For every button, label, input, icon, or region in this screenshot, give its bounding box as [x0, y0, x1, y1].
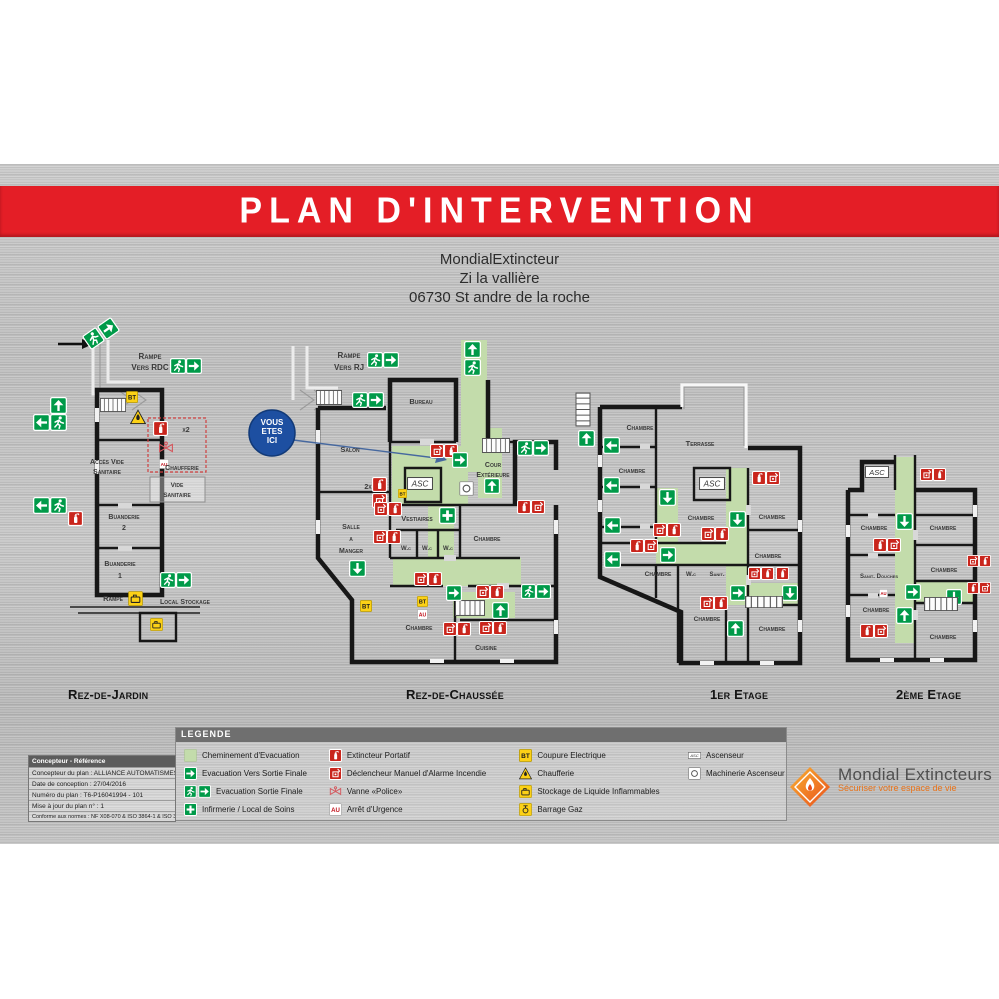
ext-icon	[933, 468, 945, 480]
arrow-icon	[184, 767, 197, 780]
arrow-icon	[369, 393, 384, 408]
room-label: Chambre	[474, 536, 502, 543]
room-label: Chambre	[931, 567, 958, 574]
ext-icon	[388, 531, 401, 544]
room-label: Chambre	[688, 515, 715, 522]
arrow-icon	[604, 478, 620, 494]
room-label: Cour	[485, 462, 502, 469]
runner-icon	[51, 415, 67, 431]
arrow-icon	[537, 585, 551, 599]
alarm-icon	[767, 472, 780, 485]
bt-icon	[126, 391, 137, 402]
au-icon	[329, 803, 342, 816]
designer-row: Mise à jour du plan n° : 1	[29, 800, 175, 811]
ext-icon	[716, 528, 729, 541]
legend-label: Cheminement d'Evacuation	[202, 751, 300, 760]
floor-rez-de-jardin: RampeVers RDCx2Accès VideSanitaireChauff…	[34, 318, 211, 641]
room-label: Chambre	[759, 626, 786, 633]
legend-column: AscenseurMachinerie Ascenseur	[688, 746, 784, 818]
arrow-icon	[605, 518, 621, 534]
stairs-icon	[316, 391, 341, 405]
runner-icon	[161, 573, 176, 588]
runner-icon	[465, 360, 481, 376]
room-label: Chambre	[627, 425, 655, 432]
room-label: Sanitaire	[163, 492, 191, 499]
room-label: a	[349, 536, 353, 543]
designer-row: Conforme aux normes : NF X08-070 & ISO 3…	[29, 811, 175, 821]
asc-icon	[688, 749, 701, 762]
arrow-icon	[534, 441, 549, 456]
legend-item: Cheminement d'Evacuation	[184, 746, 329, 764]
arrow-icon	[661, 548, 676, 563]
logo-flame-icon	[788, 765, 832, 809]
stairs-icon	[100, 398, 125, 411]
legend-column: Cheminement d'EvacuationEvacuation Vers …	[184, 746, 329, 818]
ext-icon	[458, 623, 471, 636]
room-label: W.c	[401, 546, 411, 552]
exitfinal-icon	[184, 785, 211, 798]
alarm-icon	[888, 539, 901, 552]
alarm-icon	[645, 540, 658, 553]
ext-icon	[761, 567, 773, 579]
legend-label: Vanne «Police»	[347, 787, 402, 796]
ext-icon	[154, 422, 168, 436]
alarm-icon	[875, 625, 888, 638]
ext-icon	[69, 512, 83, 526]
legend-item: Vanne «Police»	[329, 782, 519, 800]
legend-item: Stockage de Liquide Inflammables	[519, 782, 688, 800]
legend-item: Arrêt d'Urgence	[329, 800, 519, 818]
you-are-here-text: VOUS	[261, 418, 284, 427]
bt-icon	[519, 749, 532, 762]
room-label: Salon	[340, 445, 360, 454]
ext-icon	[668, 524, 681, 537]
bt-icon	[360, 600, 371, 611]
alarm-icon	[920, 468, 932, 480]
warn-icon	[131, 410, 146, 423]
runner-icon	[522, 585, 536, 599]
mach-icon	[460, 482, 474, 496]
room-label: x2	[182, 427, 189, 434]
room-label: Vers RDC	[131, 363, 168, 372]
stairs-icon	[576, 393, 590, 426]
alarm-icon	[480, 622, 493, 635]
legend-label: Evacuation Sortie Finale	[216, 787, 303, 796]
room-label: Chambre	[863, 607, 890, 614]
bt-icon	[417, 596, 427, 606]
gas-icon	[519, 803, 532, 816]
legend-item: Evacuation Vers Sortie Finale	[184, 764, 329, 782]
arrow-icon	[660, 490, 676, 506]
room-label: 2	[122, 525, 126, 532]
room-label: Sanit.	[709, 572, 724, 578]
legend-label: Extincteur Portatif	[347, 751, 410, 760]
alarm-icon	[444, 623, 457, 636]
designer-box-header: Concepteur - Référence	[29, 756, 175, 767]
mach-icon	[688, 767, 701, 780]
room-label: Chambre	[930, 525, 957, 532]
alarm-icon	[374, 531, 387, 544]
room-label: Chambre	[406, 625, 434, 632]
arrow-icon	[34, 498, 50, 514]
floor-label-rez-de-chaussee: Rez-de-Chaussée	[406, 687, 504, 702]
store-icon	[150, 618, 162, 630]
room-label: Cuisine	[475, 645, 497, 652]
legend-label: Chaufferie	[537, 769, 574, 778]
legend-item: Machinerie Ascenseur	[688, 764, 784, 782]
room-label: Terrasse	[686, 439, 715, 448]
legend-item: Chaufferie	[519, 764, 688, 782]
stairs-icon	[746, 596, 783, 607]
stairs-icon	[456, 601, 485, 616]
arrow-icon	[177, 573, 192, 588]
store-icon	[129, 592, 143, 606]
alarm-icon	[532, 501, 545, 514]
room-label: Local Stockage	[160, 599, 211, 606]
room-label: Chambre	[694, 616, 721, 623]
ext-icon	[429, 573, 442, 586]
ext-icon	[373, 478, 387, 492]
arrow-icon	[897, 608, 913, 624]
room-label: Rampe	[337, 351, 360, 360]
you-are-here-text: ETES	[262, 427, 284, 436]
arrow-icon	[485, 479, 500, 494]
you-are-here-badge: VOUSETESICI	[249, 410, 295, 456]
warn-icon	[519, 767, 532, 780]
floor-plans-canvas: BT AU	[0, 0, 999, 999]
ext-icon	[518, 501, 531, 514]
legend-item: Barrage Gaz	[519, 800, 688, 818]
ext-icon	[715, 597, 728, 610]
runner-icon	[171, 359, 186, 374]
ext-icon	[967, 582, 978, 593]
room-label: Vestiaires	[401, 514, 433, 523]
room-label: Chambre	[861, 525, 888, 532]
legend-item: Evacuation Sortie Finale	[184, 782, 329, 800]
alarm-icon	[701, 597, 714, 610]
arrow-icon	[51, 398, 67, 414]
room-label: Chambre	[645, 571, 672, 578]
room-label: W.c	[686, 572, 696, 578]
arrow-icon	[897, 514, 913, 530]
logo-name: Mondial Extincteurs	[838, 765, 992, 785]
floor-label-deuxieme-etage: 2ème Etage	[896, 687, 961, 702]
runner-icon	[368, 353, 383, 368]
asc-icon	[408, 478, 433, 490]
legend-title: LEGENDE	[176, 728, 786, 742]
legend-panel: LEGENDE Cheminement d'EvacuationEvacuati…	[175, 727, 787, 821]
legend-item: Extincteur Portatif	[329, 746, 519, 764]
alarm-icon	[375, 503, 388, 516]
alarm-icon	[748, 567, 760, 579]
arrow-icon	[906, 585, 921, 600]
ext-icon	[491, 586, 504, 599]
ext-icon	[776, 567, 788, 579]
room-label: 2x	[364, 484, 372, 491]
alarm-icon	[477, 586, 490, 599]
alarm-icon	[979, 582, 990, 593]
path-icon	[184, 749, 197, 762]
arrow-icon	[783, 586, 798, 601]
room-label: Buanderie	[108, 514, 140, 521]
alarm-icon	[431, 445, 444, 458]
you-are-here-text: ICI	[267, 436, 277, 445]
arrow-icon	[605, 552, 621, 568]
room-label: Manger	[339, 548, 363, 555]
legend-label: Machinerie Ascenseur	[706, 769, 785, 778]
arrow-icon	[604, 438, 620, 454]
alarm-icon	[329, 767, 342, 780]
room-label: Chambre	[755, 553, 782, 560]
room-label: Salle	[342, 524, 360, 531]
room-label: Chambre	[619, 468, 646, 475]
arrow-icon	[384, 353, 399, 368]
runner-icon	[353, 393, 368, 408]
logo-tagline: Sécuriser votre espace de vie	[838, 783, 992, 793]
arrow-icon	[731, 586, 746, 601]
ext-icon	[329, 749, 342, 762]
stairs-icon	[482, 439, 509, 453]
room-label: Sanit. Douches	[860, 574, 898, 580]
ext-icon	[979, 555, 990, 566]
ext-icon	[874, 539, 887, 552]
designer-box: Concepteur - Référence Concepteur du pla…	[28, 755, 176, 822]
room-label: Bureau	[409, 397, 433, 406]
arrow-icon	[579, 431, 595, 447]
legend-label: Infirmerie / Local de Soins	[202, 805, 295, 814]
room-label: Sanitaire	[93, 469, 122, 476]
arrow-icon	[465, 342, 481, 358]
arrow-icon	[447, 586, 462, 601]
room-label: Rampe	[138, 352, 161, 361]
arrow-icon	[34, 415, 50, 431]
cross-icon	[184, 803, 197, 816]
room-label: Vide	[171, 482, 184, 489]
arrow-icon	[728, 621, 744, 637]
arrow-icon	[187, 359, 202, 374]
vanne-icon	[329, 785, 342, 798]
bt-icon	[398, 489, 406, 497]
alarm-icon	[967, 555, 978, 566]
room-label: 1	[118, 573, 122, 580]
ext-icon	[753, 472, 766, 485]
room-label: Vers RJ	[334, 363, 364, 372]
stairs-icon	[925, 597, 958, 610]
asc-icon	[700, 478, 725, 490]
arrow-icon	[453, 453, 468, 468]
legend-label: Coupure Electrique	[537, 751, 605, 760]
au-icon	[418, 610, 428, 620]
designer-row: Numéro du plan : T6-P16041994 - 101	[29, 789, 175, 800]
arrow-icon	[350, 561, 366, 577]
legend-column: Coupure ElectriqueChaufferieStockage de …	[519, 746, 688, 818]
floor-rez-de-chaussee: RampeVers RJBureauSalon2xCourExtérieureV…	[293, 340, 558, 663]
alarm-icon	[654, 524, 667, 537]
arrow-icon	[493, 603, 509, 619]
legend-label: Arrêt d'Urgence	[347, 805, 403, 814]
ext-icon	[389, 503, 402, 516]
store-icon	[519, 785, 532, 798]
legend-item: Déclencheur Manuel d'Alarme Incendie	[329, 764, 519, 782]
legend-label: Stockage de Liquide Inflammables	[537, 787, 659, 796]
runner-icon	[51, 498, 67, 514]
ext-icon	[494, 622, 507, 635]
alarm-icon	[415, 573, 428, 586]
runner-icon	[518, 441, 533, 456]
logo: Mondial Extincteurs Sécuriser votre espa…	[788, 765, 992, 809]
cross-icon	[440, 508, 456, 524]
legend-column: Extincteur PortatifDéclencheur Manuel d'…	[329, 746, 519, 818]
asc-icon	[866, 467, 889, 478]
alarm-icon	[702, 528, 715, 541]
legend-item: Infirmerie / Local de Soins	[184, 800, 329, 818]
room-label: W.c	[422, 546, 432, 552]
designer-row: Date de conception : 27/04/2016	[29, 778, 175, 789]
legend-item: Coupure Electrique	[519, 746, 688, 764]
legend-label: Evacuation Vers Sortie Finale	[202, 769, 307, 778]
room-label: W.c	[443, 546, 453, 552]
legend-item: Ascenseur	[688, 746, 784, 764]
ext-icon	[861, 625, 874, 638]
designer-row: Concepteur du plan : ALLIANCE AUTOMATISM…	[29, 767, 175, 778]
room-label: Rampe	[103, 594, 124, 603]
floor-label-premier-etage: 1er Etage	[710, 687, 768, 702]
au-icon	[879, 589, 887, 597]
legend-label: Ascenseur	[706, 751, 744, 760]
floor-deuxieme-etage: ChambreChambreSanit. DouchesChambreChamb…	[846, 455, 991, 662]
arrow-icon	[730, 512, 746, 528]
room-label: Accès Vide	[90, 458, 125, 466]
ext-icon	[631, 540, 644, 553]
room-label: Extérieure	[476, 471, 510, 479]
room-label: Chambre	[759, 514, 786, 521]
room-label: Buanderie	[104, 561, 136, 568]
legend-label: Barrage Gaz	[537, 805, 582, 814]
floor-premier-etage: ChambreTerrasseChambreChambreChambreCham…	[576, 385, 802, 665]
legend-label: Déclencheur Manuel d'Alarme Incendie	[347, 769, 486, 778]
room-label: Chambre	[930, 634, 957, 641]
room-label: Chaufferie	[165, 465, 199, 472]
floor-label-rez-de-jardin: Rez-de-Jardin	[68, 687, 148, 702]
